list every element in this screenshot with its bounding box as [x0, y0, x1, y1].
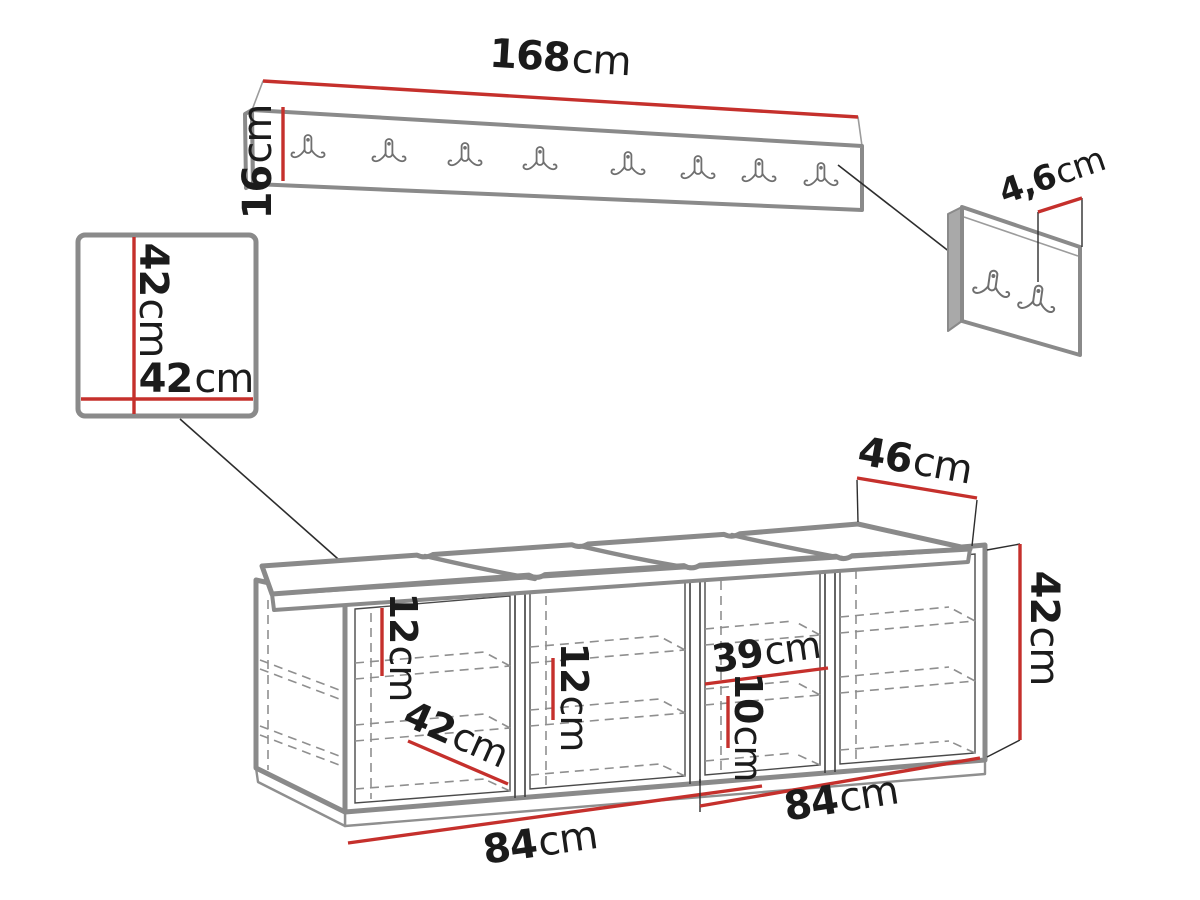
dimension-line-panel-depth: [1038, 198, 1082, 212]
hook-panel-side-edge: [948, 207, 962, 331]
leader-line-mirror-to-bench: [180, 419, 346, 566]
hook-panel-front-face: [962, 207, 1080, 355]
dim-bench-height-label: 42cm: [1021, 571, 1067, 686]
dim-shelf-gap-3-label: 10cm: [726, 673, 770, 782]
dim-bench-depth-label: 46cm: [855, 428, 976, 493]
dim-panel-depth-label: 4,6cm: [994, 139, 1110, 212]
dim-rack-length-label: 168cm: [488, 31, 632, 86]
dim-mirror-height-label: 42cm: [130, 243, 176, 358]
extension-line: [857, 480, 858, 522]
furniture-dimension-diagram: 168cm 16cm 4,6cm 42cm 42cm: [0, 0, 1200, 900]
dim-shelf-gap-1-label: 12cm: [381, 593, 425, 702]
mirror-panel: 42cm 42cm: [78, 235, 346, 566]
hook-panel: 4,6cm: [838, 139, 1110, 355]
dim-mirror-width-label: 42cm: [139, 356, 254, 402]
diagram-canvas: 168cm 16cm 4,6cm 42cm 42cm: [0, 0, 1200, 900]
extension-line: [972, 500, 977, 546]
extension-line: [987, 544, 1020, 550]
dim-rack-height-label: 16cm: [235, 105, 281, 220]
bench: 46cm 42cm 12cm 12cm 39cm: [256, 428, 1067, 873]
dim-shelf-gap-2-label: 12cm: [552, 643, 596, 752]
extension-line: [987, 740, 1020, 757]
coat-rack: 168cm 16cm: [235, 31, 862, 220]
